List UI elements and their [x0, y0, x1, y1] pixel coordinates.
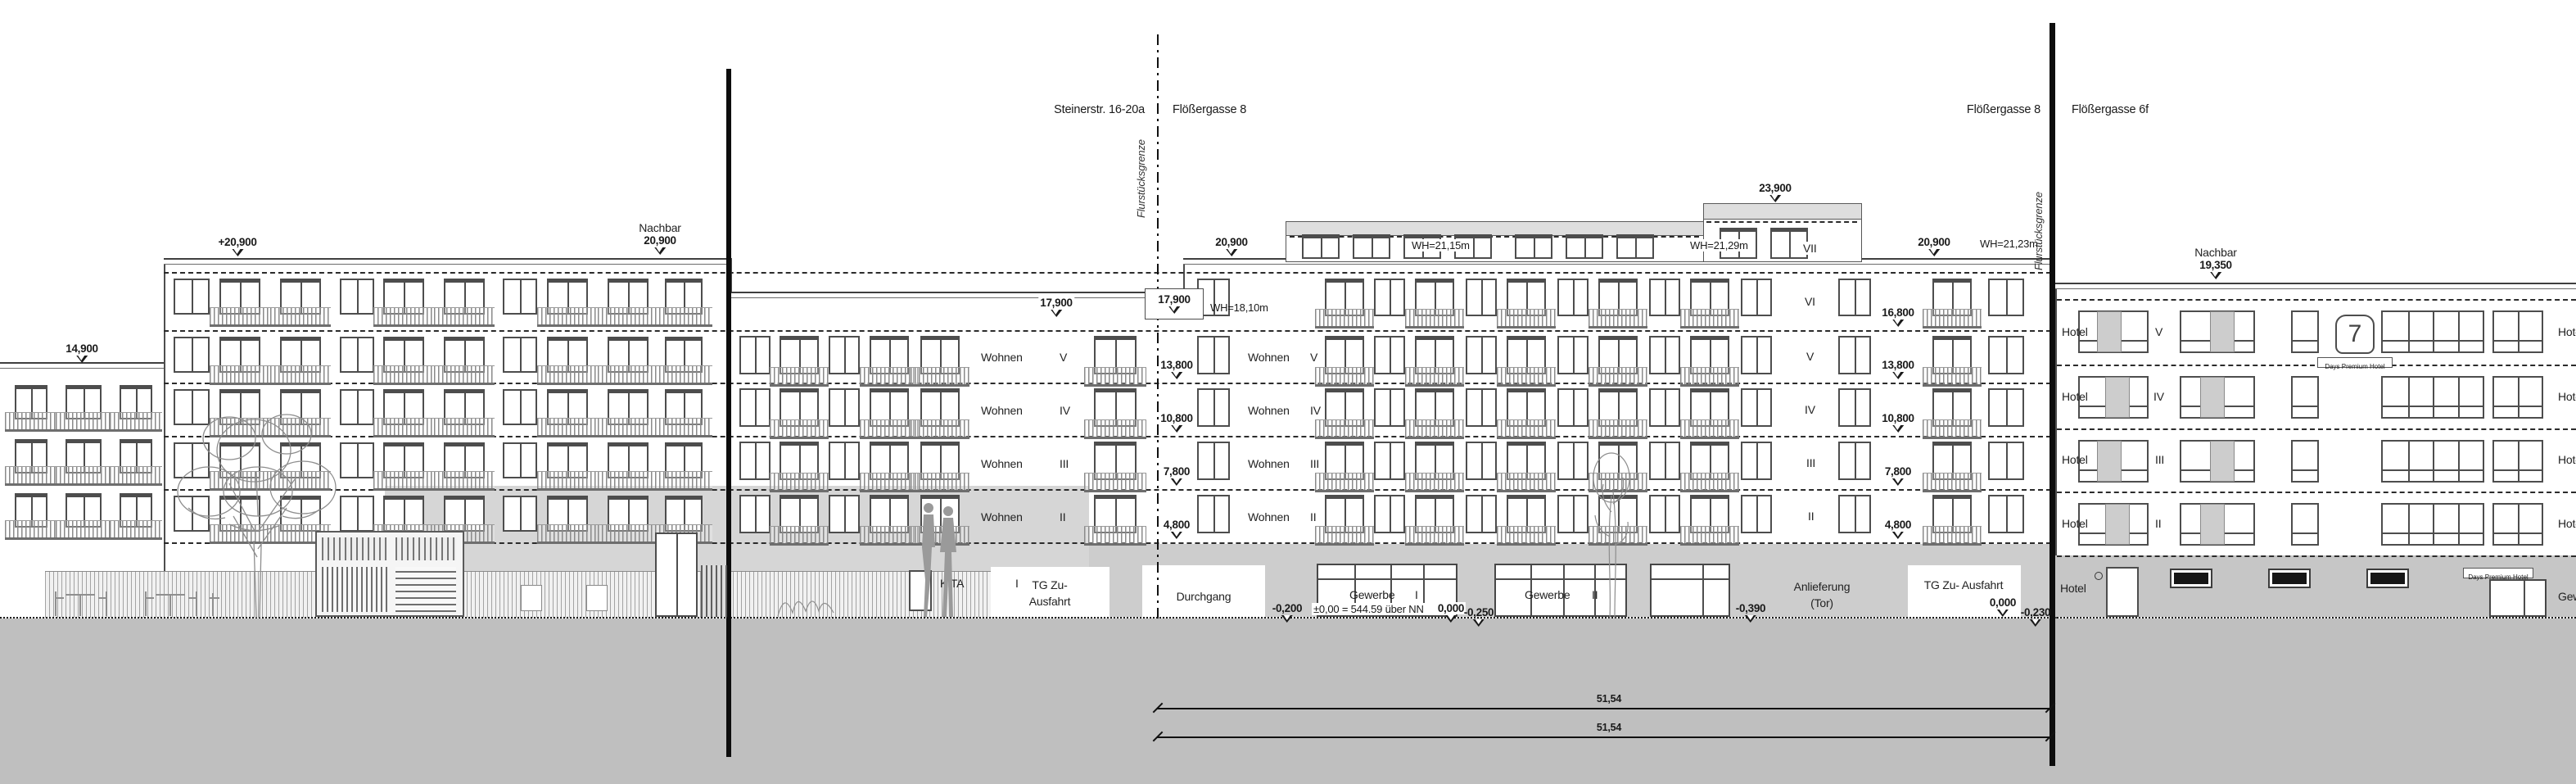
balcony-railing	[770, 473, 829, 492]
window-unit	[2180, 310, 2255, 353]
window-unit	[1374, 442, 1405, 480]
hotel-door-knob	[2095, 572, 2103, 580]
right-numeral-II: II	[1808, 510, 1814, 523]
balcony-railing	[655, 365, 712, 385]
tg-exit-box-1	[991, 567, 1109, 617]
level-roof-top: 23,900	[1759, 182, 1792, 202]
level-attic-left: 17,900	[1038, 297, 1074, 317]
hotel-IV-num: IV	[2153, 390, 2164, 403]
hotel-brand-text: Days Premium Hotel	[2325, 363, 2384, 370]
rooftop-roofslab-right	[1703, 203, 1862, 220]
window-unit	[2180, 376, 2255, 419]
wohnen-2-II: Wohnen	[1246, 510, 1291, 523]
balcony-railing	[434, 471, 495, 491]
window-unit	[1557, 336, 1589, 374]
wohnen-2-V-num: V	[1310, 351, 1317, 364]
street-label-floessergasse6f: Flößergasse 6f	[2072, 103, 2149, 116]
boundary-label-1: Flurstücksgrenze	[1135, 139, 1147, 218]
wall-height-mid: WH=21,29m	[1688, 239, 1750, 252]
balcony-railing	[770, 419, 829, 439]
window-unit	[1838, 336, 1871, 374]
floor-line-20900	[164, 272, 2051, 274]
balcony-railing	[434, 365, 495, 385]
people-figures	[911, 498, 968, 619]
balcony-railing	[655, 418, 712, 437]
window-unit	[2180, 440, 2255, 483]
window-unit	[1988, 388, 2024, 427]
hotel-ground-badge-box: Days Premium Hotel	[2463, 568, 2533, 578]
level-attic-boxed: 17,900	[1158, 293, 1191, 314]
window-unit	[1988, 442, 2024, 480]
balcony-railing	[537, 471, 598, 491]
wohnen-2-II-num: II	[1310, 510, 1316, 523]
wohnen-1-V: Wohnen	[981, 351, 1023, 364]
left-building-door	[655, 532, 698, 617]
window-unit	[1466, 279, 1497, 316]
hotel-ground-label: Hotel	[2060, 582, 2086, 595]
window-unit	[2291, 310, 2319, 353]
window-unit	[2078, 376, 2149, 419]
window-unit	[1838, 388, 1871, 427]
dimension-value-1: 51,54	[1597, 693, 1621, 705]
gewerbe1-label: Gewerbe	[1349, 588, 1394, 601]
hotel-line-4	[2057, 365, 2576, 366]
hotel-cut-V: Hotel	[2558, 325, 2576, 338]
window-unit	[1741, 279, 1772, 316]
balcony-railing	[373, 418, 434, 437]
level-center-parapet-left: 20,900	[1215, 236, 1248, 256]
gewerbe1-num: I	[1415, 588, 1418, 601]
window-unit	[1515, 234, 1552, 259]
window-unit	[1566, 234, 1603, 259]
window-unit	[1649, 388, 1680, 427]
window-unit	[1197, 388, 1230, 427]
window-unit	[739, 388, 771, 427]
balcony-railing	[1497, 473, 1556, 492]
balcony-railing	[1923, 526, 1982, 546]
courtyard-gate	[315, 531, 464, 617]
level-minus-023: -0,230	[2021, 606, 2050, 627]
level-col-left-13800: 13,800	[1159, 359, 1195, 379]
hotel-cut-IV: Hotel	[2558, 390, 2576, 403]
window-unit	[2291, 503, 2319, 546]
hotel-IV: Hotel	[2062, 390, 2088, 403]
balcony-railing	[1315, 473, 1374, 492]
balcony-railing	[1315, 367, 1374, 387]
property-line-flurstuecksgrenze-1	[1157, 34, 1159, 623]
window-unit	[340, 279, 374, 315]
right-numeral-VI: VI	[1805, 295, 1815, 308]
window-unit	[174, 337, 210, 373]
level-col-right-7800: 7,800	[1883, 465, 1913, 486]
window-unit	[1649, 442, 1680, 480]
balcony-railing	[598, 307, 658, 327]
hotel-cut-III: Hotel	[2558, 453, 2576, 466]
kita-num: I	[1015, 577, 1019, 590]
balcony-railing	[1084, 367, 1146, 387]
right-hotel-parapet	[2055, 283, 2576, 289]
window-unit	[1374, 388, 1405, 427]
window-unit	[1649, 279, 1680, 316]
window-unit	[1197, 495, 1230, 533]
hotel-line-2	[2057, 492, 2576, 493]
window-unit	[1838, 442, 1871, 480]
balcony-railing	[1497, 526, 1556, 546]
hotel-ground-window-1	[2170, 569, 2212, 588]
level-minus-039: -0,390	[1736, 602, 1765, 623]
gewerbe2-label: Gewerbe	[1525, 588, 1570, 601]
level-col-left-7800: 7,800	[1162, 465, 1191, 486]
hotel-cut-II: Hotel	[2558, 517, 2576, 530]
balcony-railing	[655, 307, 712, 327]
hotel-III: Hotel	[2062, 453, 2088, 466]
balcony-railing	[1084, 473, 1146, 492]
window-unit	[1466, 388, 1497, 427]
level-nachbar-right: Nachbar 19,350	[2194, 246, 2237, 279]
hotel-ground-storefront	[2489, 579, 2547, 617]
level-zero-right: 0,000	[1990, 596, 2016, 617]
balcony-railing	[1589, 419, 1647, 439]
balcony-railing	[56, 466, 111, 486]
window-unit	[1741, 442, 1772, 480]
roof-numeral-VII: VII	[1801, 242, 1819, 255]
window-unit	[1988, 279, 2024, 316]
window-unit	[1988, 495, 2024, 533]
balcony-railing	[1923, 309, 1982, 329]
hotel-ground-window-2	[2268, 569, 2311, 588]
balcony-railing	[1084, 419, 1146, 439]
hotel-line-1	[2057, 555, 2576, 557]
balcony-railing	[270, 307, 331, 327]
hotel-line-roof	[2057, 299, 2576, 301]
window-unit	[829, 336, 860, 374]
balcony-railing	[1497, 367, 1556, 387]
window-unit	[2492, 503, 2543, 546]
balcony-railing	[1405, 526, 1464, 546]
balcony-railing	[373, 471, 434, 491]
hotel-brand-number: 7	[2348, 320, 2362, 348]
right-numeral-IV: IV	[1805, 403, 1815, 416]
nn-reference: ±0,00 = 544.59 über NN	[1312, 603, 1426, 615]
balcony-railing	[373, 365, 434, 385]
window-unit	[1741, 388, 1772, 427]
window-unit	[2492, 376, 2543, 419]
hotel-III-num: III	[2155, 453, 2164, 466]
balcony-railing	[56, 412, 111, 432]
hotel-II-num: II	[2155, 517, 2161, 530]
wohnen-1-III: Wohnen	[981, 457, 1023, 470]
left-annex-parapet	[0, 362, 165, 369]
level-col-right-4800: 4,800	[1883, 519, 1913, 539]
window-unit	[1466, 495, 1497, 533]
street-label-floessergasse8-a: Flößergasse 8	[1173, 103, 1246, 116]
wohnen-1-IV-num: IV	[1060, 404, 1070, 417]
tree-small	[1579, 446, 1644, 619]
window-unit	[1374, 495, 1405, 533]
window-unit	[1197, 442, 1230, 480]
window-unit	[2291, 440, 2319, 483]
balcony-railing	[537, 524, 598, 544]
window-unit	[2492, 440, 2543, 483]
balcony-railing	[537, 307, 598, 327]
durchgang-label: Durchgang	[1177, 590, 1232, 603]
window-unit	[1466, 442, 1497, 480]
street-label-floessergasse8-b: Flößergasse 8	[1929, 103, 2040, 116]
level-center-parapet-right: 20,900	[1918, 236, 1950, 256]
window-unit	[1197, 336, 1230, 374]
balcony-railing	[537, 418, 598, 437]
section-line-left	[726, 69, 731, 757]
balcony-railing	[1315, 419, 1374, 439]
window-unit	[739, 495, 771, 533]
hotel-entrance-door	[2106, 567, 2139, 617]
level-col-right-16800: 16,800	[1880, 306, 1916, 327]
window-unit	[1374, 279, 1405, 316]
elevation-drawing: Days Premium Hotel 7 Days Premium Hotel …	[0, 0, 2576, 784]
balcony-railing	[1405, 309, 1464, 329]
balcony-railing	[434, 307, 495, 327]
balcony-railing	[655, 471, 712, 491]
level-triangle	[232, 249, 243, 256]
balcony-railing	[270, 365, 331, 385]
wohnen-1-III-num: III	[1060, 457, 1069, 470]
window-unit	[1741, 336, 1772, 374]
hotel-line-3	[2057, 428, 2576, 430]
wohnen-1-II-num: II	[1060, 510, 1065, 523]
wohnen-2-III: Wohnen	[1246, 457, 1291, 470]
level-col-left-4800: 4,800	[1162, 519, 1191, 539]
window-unit	[1557, 388, 1589, 427]
window-unit	[503, 496, 537, 532]
wohnen-2-IV: Wohnen	[1246, 404, 1291, 417]
balcony-railing	[5, 520, 57, 540]
window-unit	[1741, 495, 1772, 533]
window-unit	[2381, 376, 2484, 419]
wohnen-2-IV-num: IV	[1310, 404, 1321, 417]
balcony-railing	[210, 307, 270, 327]
window-unit	[1649, 336, 1680, 374]
level-minus-025: -0,250	[1464, 606, 1494, 627]
cafe-tables	[49, 583, 229, 618]
anlieferung-line2: (Tor)	[1810, 596, 1833, 610]
cladding-slot-1	[521, 585, 542, 611]
window-unit	[1988, 336, 2024, 374]
left-building-slat-panel	[701, 565, 727, 617]
wohnen-1-V-num: V	[1060, 351, 1067, 364]
balcony-railing	[1589, 309, 1647, 329]
level-triangle	[1168, 306, 1180, 314]
level-left-parapet: +20,900	[218, 236, 256, 256]
window-unit	[1302, 234, 1340, 259]
window-unit	[829, 442, 860, 480]
rooftop-dash-right	[1706, 221, 1857, 223]
window-unit	[1649, 495, 1680, 533]
balcony-railing	[1680, 526, 1739, 546]
balcony-railing	[598, 365, 658, 385]
wall-height-right: WH=21,23m	[1980, 238, 2038, 250]
balcony-railing	[1405, 419, 1464, 439]
window-unit	[1557, 279, 1589, 316]
window-unit	[174, 279, 210, 315]
hotel-II: Hotel	[2062, 517, 2088, 530]
hotel-brand-badge-label: Days Premium Hotel	[2317, 357, 2393, 368]
hotel-V: Hotel	[2062, 325, 2088, 338]
cladding-slot-2	[586, 585, 608, 611]
balcony-railing	[770, 367, 829, 387]
right-numeral-III: III	[1806, 456, 1815, 469]
left-neighbor-parapet	[164, 258, 729, 265]
level-col-left-10800: 10,800	[1159, 412, 1195, 433]
balcony-railing	[911, 419, 969, 439]
wall-height-attic: WH=18,10m	[1210, 301, 1268, 314]
window-unit	[829, 388, 860, 427]
window-unit	[340, 337, 374, 373]
level-triangle	[1769, 195, 1781, 202]
balcony-railing	[1680, 367, 1739, 387]
window-unit	[1838, 279, 1871, 316]
level-zero-left: 0,000	[1436, 602, 1466, 623]
balcony-railing	[1923, 367, 1982, 387]
tg1-line2: Ausfahrt	[1029, 595, 1071, 608]
wohnen-1-IV: Wohnen	[981, 404, 1023, 417]
anlieferung-line1: Anlieferung	[1794, 580, 1851, 593]
level-col-right-13800: 13,800	[1880, 359, 1916, 379]
balcony-railing	[5, 412, 57, 432]
wohnen-2-III-num: III	[1310, 457, 1319, 470]
window-unit	[503, 389, 537, 425]
center-left-parapet	[729, 292, 1159, 298]
hotel-ground-window-3	[2366, 569, 2409, 588]
dimension-line-2	[1157, 736, 2051, 738]
window-unit	[829, 495, 860, 533]
ground-soil	[0, 619, 2576, 784]
wall-height-left: WH=21,15m	[1410, 239, 1471, 252]
level-triangle	[2210, 272, 2221, 279]
window-unit	[2291, 376, 2319, 419]
tg1-line1: TG Zu-	[1032, 578, 1067, 591]
window-unit	[2180, 503, 2255, 546]
shrub	[770, 573, 843, 618]
dimension-line-1	[1157, 708, 2051, 709]
balcony-railing	[1589, 367, 1647, 387]
balcony-railing	[770, 526, 829, 546]
balcony-railing	[434, 418, 495, 437]
level-nachbar-left: Nachbar 20,900	[639, 221, 681, 255]
window-unit	[2492, 310, 2543, 353]
wohnen-2-V: Wohnen	[1246, 351, 1291, 364]
balcony-railing	[598, 524, 658, 544]
window-unit	[503, 337, 537, 373]
window-unit	[1353, 234, 1390, 259]
balcony-railing	[537, 365, 598, 385]
boundary-label-2: Flurstücksgrenze	[2032, 192, 2045, 270]
balcony-railing	[911, 367, 969, 387]
window-unit	[1466, 336, 1497, 374]
wohnen-1-II: Wohnen	[981, 510, 1023, 523]
balcony-railing	[210, 365, 270, 385]
balcony-railing	[1923, 419, 1982, 439]
window-unit	[2078, 310, 2149, 353]
balcony-railing	[1405, 367, 1464, 387]
balcony-railing	[373, 307, 434, 327]
street-label-steinerstr: Steinerstr. 16-20a	[1025, 103, 1145, 116]
balcony-railing	[598, 471, 658, 491]
window-unit	[2381, 310, 2484, 353]
balcony-railing	[598, 418, 658, 437]
window-unit	[1374, 336, 1405, 374]
balcony-railing	[1680, 309, 1739, 329]
balcony-railing	[1497, 309, 1556, 329]
level-triangle	[1226, 249, 1237, 256]
balcony-railing	[1315, 309, 1374, 329]
level-annex-roof: 14,900	[66, 342, 98, 363]
window-unit	[2381, 440, 2484, 483]
window-unit	[1838, 495, 1871, 533]
level-triangle	[76, 356, 88, 363]
gewerbe-cut-ground: Gewerbe	[2558, 590, 2576, 603]
level-triangle	[654, 247, 666, 255]
balcony-railing	[56, 520, 111, 540]
window-unit	[503, 279, 537, 315]
balcony-railing	[1405, 473, 1464, 492]
balcony-railing	[1084, 526, 1146, 546]
balcony-railing	[1315, 526, 1374, 546]
window-unit	[739, 336, 771, 374]
window-unit	[503, 442, 537, 478]
balcony-railing	[1680, 473, 1739, 492]
window-unit	[739, 442, 771, 480]
balcony-railing	[5, 466, 57, 486]
level-col-right-10800: 10,800	[1880, 412, 1916, 433]
section-line-right	[2050, 23, 2055, 766]
level-minus-020: -0,200	[1272, 602, 1302, 623]
balcony-railing	[1680, 419, 1739, 439]
hotel-V-num: V	[2155, 325, 2162, 338]
right-numeral-V: V	[1806, 350, 1814, 363]
balcony-railing	[911, 473, 969, 492]
window-unit	[2078, 503, 2149, 546]
level-triangle	[1051, 310, 1062, 317]
dimension-value-2: 51,54	[1597, 722, 1621, 733]
window-unit	[2078, 440, 2149, 483]
balcony-railing	[1923, 473, 1982, 492]
storefront-3	[1650, 564, 1730, 617]
window-unit	[2381, 503, 2484, 546]
level-triangle	[1928, 249, 1940, 256]
floor-line-16800	[164, 330, 2051, 332]
hotel-brand-badge: 7	[2335, 315, 2375, 354]
balcony-railing	[1497, 419, 1556, 439]
window-unit	[1616, 234, 1654, 259]
tg2-label: TG Zu- Ausfahrt	[1924, 578, 2004, 591]
